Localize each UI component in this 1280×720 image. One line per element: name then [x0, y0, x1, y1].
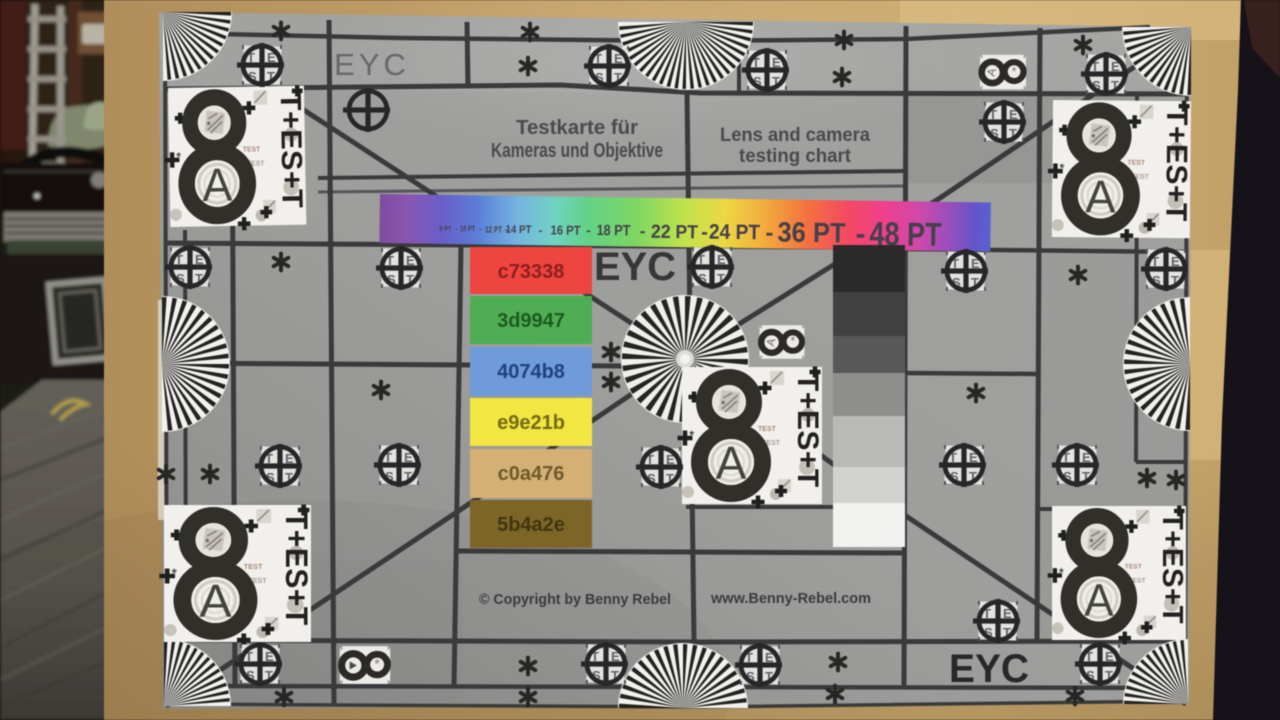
- svg-text:*: *: [689, 427, 695, 443]
- svg-text:TEST: TEST: [243, 146, 261, 153]
- svg-text:A: A: [716, 437, 747, 489]
- svg-text:EYC: EYC: [594, 245, 676, 289]
- svg-text:TEST: TEST: [1127, 160, 1145, 167]
- svg-text:TEST: TEST: [244, 563, 263, 571]
- svg-text:14 PT: 14 PT: [505, 224, 531, 236]
- svg-text:8 PT: 8 PT: [439, 226, 452, 233]
- svg-text:T+ES+T: T+ES+T: [279, 511, 315, 626]
- svg-text:22 PT: 22 PT: [651, 222, 699, 244]
- svg-text:Kameras und Objektive: Kameras und Objektive: [491, 140, 663, 162]
- svg-text:*: *: [205, 537, 210, 549]
- svg-text:T+ES+T: T+ES+T: [274, 92, 308, 209]
- svg-text:*: *: [1012, 64, 1017, 78]
- svg-text:© Copyright by Benny Rebel: © Copyright by Benny Rebel: [479, 591, 671, 608]
- svg-text:c0a476: c0a476: [498, 463, 565, 485]
- svg-text:*: *: [176, 149, 182, 165]
- svg-text:*: *: [375, 657, 381, 672]
- svg-text:TEST: TEST: [758, 426, 777, 433]
- svg-text:-: -: [479, 224, 482, 233]
- svg-text:16 PT: 16 PT: [550, 222, 580, 237]
- svg-text:www.Benny-Rebel.com: www.Benny-Rebel.com: [710, 590, 871, 607]
- svg-text:T+ES+T: T+ES+T: [1156, 512, 1188, 624]
- svg-text:-: -: [538, 223, 542, 237]
- svg-text:EYC: EYC: [949, 647, 1029, 691]
- svg-text:c73338: c73338: [498, 261, 565, 283]
- svg-text:T+ES+T: T+ES+T: [1159, 107, 1193, 222]
- svg-text:5b4a2e: 5b4a2e: [497, 514, 565, 536]
- svg-text:*: *: [790, 334, 795, 348]
- svg-text:A: A: [202, 159, 233, 212]
- svg-text:*: *: [1089, 537, 1093, 549]
- svg-text:-: -: [505, 225, 508, 236]
- svg-text:A: A: [1085, 171, 1116, 223]
- svg-text:-: -: [765, 219, 773, 246]
- svg-text:testing chart: testing chart: [739, 146, 852, 167]
- svg-text:Testkarte für: Testkarte für: [516, 117, 638, 139]
- svg-text:EYC: EYC: [334, 47, 410, 82]
- svg-text:T+ES+T: T+ES+T: [791, 373, 824, 488]
- svg-text:A: A: [1084, 576, 1114, 626]
- svg-text:4074b8: 4074b8: [497, 361, 565, 383]
- svg-text:Lens and camera: Lens and camera: [720, 125, 870, 146]
- svg-text:TEST: TEST: [1125, 564, 1143, 571]
- svg-text:*: *: [1059, 565, 1065, 580]
- svg-text:12 PT: 12 PT: [485, 224, 502, 234]
- svg-text:e9e21b: e9e21b: [497, 412, 565, 434]
- svg-text:*: *: [171, 566, 177, 582]
- svg-text:-: -: [586, 222, 591, 238]
- svg-text:-: -: [640, 222, 646, 241]
- svg-text:-: -: [701, 221, 708, 243]
- svg-text:24 PT: 24 PT: [709, 221, 760, 245]
- svg-text:*: *: [721, 399, 726, 411]
- svg-text:A: A: [199, 575, 232, 627]
- svg-text:*: *: [1059, 160, 1065, 176]
- svg-text:3d9947: 3d9947: [497, 310, 565, 332]
- svg-text:10 PT: 10 PT: [460, 224, 475, 233]
- svg-text:36 PT: 36 PT: [777, 217, 845, 249]
- svg-text:18 PT: 18 PT: [596, 222, 630, 239]
